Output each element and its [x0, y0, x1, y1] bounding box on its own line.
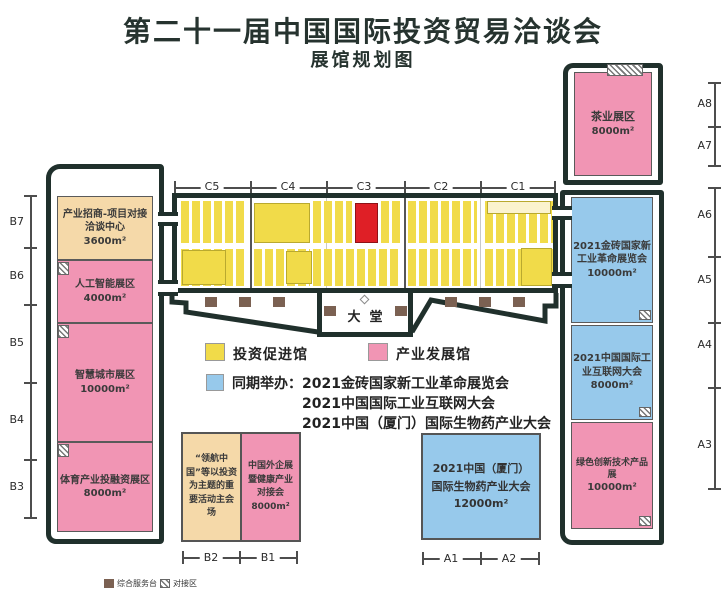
block-label: 国际生物药产业大会: [432, 478, 531, 496]
ruler-tick: [708, 322, 721, 324]
legend-label-yellow: 投资促进馆: [233, 344, 308, 364]
legend-concurrent-prefix: 同期举办：: [232, 376, 302, 392]
block-foreign-enterprise-health: 中国外企展暨健康产业对接会 8000m²: [240, 434, 299, 540]
block-biopharma-conference: 2021中国（厦门） 国际生物药产业大会 12000m²: [421, 433, 541, 540]
exhibition-map: 第二十一届中国国际投资贸易洽谈会 展馆规划图 产业招商-项目对接洽谈中心 360…: [0, 0, 726, 595]
ruler-label-c5: C5: [201, 180, 224, 193]
ruler-label-b7: B7: [2, 215, 24, 228]
hall-divider: [480, 198, 481, 288]
corridor-connector: [158, 212, 178, 226]
corridor-connector: [158, 280, 178, 296]
ruler-tick: [708, 165, 721, 167]
ruler-label-a7: A7: [690, 139, 712, 152]
ruler-label-c4: C4: [277, 180, 300, 193]
corridor-connector: [552, 272, 572, 288]
ruler-line-a-side: [714, 188, 716, 490]
block-area: 8000m²: [84, 487, 127, 501]
booths-band: [381, 201, 401, 243]
hall-divider: [404, 198, 406, 288]
ruler-label-a5: A5: [690, 273, 712, 286]
service-desk-marker: [239, 297, 251, 307]
block-investment-matchmaking-center: 产业招商-项目对接洽谈中心 3600m²: [57, 196, 153, 260]
service-desk-legend-icon: [104, 579, 114, 588]
legend-swatch-pink: [368, 343, 388, 361]
highlighted-booth-red: [355, 203, 378, 243]
matching-area-icon: [58, 444, 69, 457]
ruler-label-b3: B3: [2, 480, 24, 493]
ruler-line-b-side: [30, 196, 32, 518]
service-desk-marker: [513, 297, 525, 307]
ruler-label-b1: B1: [257, 551, 280, 564]
legend-concurrent-line3: 2021中国（厦门）国际生物药产业大会: [302, 414, 551, 434]
ruler-label-b6: B6: [2, 269, 24, 282]
block-label: 2021中国（厦门）: [433, 460, 530, 478]
south-b-building: “领航中国”等以投资为主题的重要活动主会场 中国外企展暨健康产业对接会 8000…: [181, 432, 301, 542]
booths-band: [408, 249, 477, 286]
service-desk-marker: [479, 297, 491, 307]
booth-block-large: [182, 250, 226, 285]
ruler-label-c3: C3: [353, 180, 376, 193]
booths-band: [408, 201, 477, 243]
block-label: 人工智能展区: [75, 278, 135, 292]
ruler-label-b4: B4: [2, 413, 24, 426]
ruler-tick: [708, 256, 721, 258]
block-smart-city-exhibition: 智慧城市展区 10000m²: [57, 323, 153, 442]
block-ai-exhibition: 人工智能展区 4000m²: [57, 260, 153, 323]
block-label: 绿色创新技术产品展: [572, 457, 652, 481]
block-brics-new-industrial-revolution: 2021金砖国家新工业革命展览会 10000m²: [571, 197, 653, 323]
legend-swatch-blue: [206, 374, 224, 391]
legend-label-pink: 产业发展馆: [396, 344, 471, 364]
block-label: 体育产业投融资展区: [60, 474, 150, 488]
booths-band: [313, 201, 352, 243]
block-area: 3600m²: [84, 235, 127, 249]
ruler-tick: [296, 551, 298, 564]
block-tea-exhibition: 茶业展区 8000m²: [574, 72, 652, 176]
ruler-label-b2: B2: [200, 551, 223, 564]
ruler-tick: [24, 247, 37, 249]
block-label: 茶业展区: [591, 110, 635, 125]
ruler-tick: [708, 82, 721, 84]
matching-area-legend-label: 对接区: [173, 578, 197, 589]
ruler-line-a-top: [714, 83, 716, 167]
ruler-label-c1: C1: [507, 180, 530, 193]
booth-block-large: [521, 248, 552, 286]
service-desk-marker: [205, 297, 217, 307]
ruler-label-a6: A6: [690, 208, 712, 221]
legend-swatch-yellow: [205, 343, 225, 361]
matching-area-legend-icon: [160, 579, 170, 588]
ruler-label-c2: C2: [430, 180, 453, 193]
corridor-connector: [552, 206, 572, 220]
block-area: 8000m²: [592, 125, 635, 139]
booths-band: [181, 201, 247, 243]
ruler-tick: [182, 551, 184, 564]
service-desk-legend-label: 综合服务台: [117, 578, 157, 589]
ruler-tick: [24, 195, 37, 197]
block-area: 4000m²: [84, 292, 127, 306]
ruler-tick: [422, 552, 424, 565]
ruler-label-a1: A1: [440, 552, 463, 565]
ruler-label-a3: A3: [690, 438, 712, 451]
ruler-tick: [708, 187, 721, 189]
legend-concurrent-events: 同期举办：2021金砖国家新工业革命展览会 2021中国国际工业互联网大会 20…: [232, 374, 551, 434]
block-label: 2021中国国际工业互联网大会: [572, 352, 652, 379]
ruler-label-a4: A4: [690, 338, 712, 351]
block-label: 2021金砖国家新工业革命展览会: [572, 240, 652, 267]
hall-divider: [250, 198, 252, 288]
block-area: 8000m²: [591, 379, 634, 393]
block-area: 10000m²: [587, 481, 637, 495]
block-main-venue: “领航中国”等以投资为主题的重要活动主会场: [183, 434, 240, 540]
matching-area-icon: [58, 325, 69, 338]
service-desk-marker: [324, 306, 336, 316]
legend-concurrent-line2: 2021中国国际工业互联网大会: [302, 394, 551, 414]
block-area: 12000m²: [454, 495, 509, 513]
service-desk-marker: [395, 306, 407, 316]
matching-area-icon: [639, 516, 651, 526]
booths-band: [313, 249, 401, 286]
ruler-tick: [708, 126, 721, 128]
ruler-tick: [24, 517, 37, 519]
ruler-tick: [239, 551, 241, 564]
block-sports-investment-exhibition: 体育产业投融资展区 8000m²: [57, 442, 153, 532]
ruler-tick: [708, 387, 721, 389]
ruler-tick: [24, 304, 37, 306]
ruler-tick: [538, 552, 540, 565]
block-area: 10000m²: [587, 267, 637, 281]
matching-area-icon: [639, 310, 651, 320]
service-desk-marker: [445, 297, 457, 307]
legend-concurrent-line1: 同期举办：2021金砖国家新工业革命展览会: [232, 374, 551, 394]
block-label: 智慧城市展区: [75, 369, 135, 383]
block-area: 8000m²: [251, 501, 289, 515]
ruler-tick: [480, 552, 482, 565]
block-area: 10000m²: [80, 383, 130, 397]
matching-area-icon: [607, 64, 643, 76]
ruler-tick: [24, 459, 37, 461]
block-label: 产业招商-项目对接洽谈中心: [58, 208, 152, 235]
matching-area-icon: [639, 407, 651, 417]
booth-block-wide: [487, 201, 551, 214]
booth-block-large: [254, 203, 310, 243]
service-desk-marker: [273, 297, 285, 307]
legend-concurrent-event: 2021金砖国家新工业革命展览会: [302, 376, 509, 392]
page-title: 第二十一届中国国际投资贸易洽谈会: [0, 10, 726, 50]
ruler-tick: [708, 488, 721, 490]
matching-area-icon: [58, 262, 69, 275]
block-label: 中国外企展暨健康产业对接会: [245, 460, 296, 501]
lobby-label: 大堂: [338, 306, 391, 325]
ruler-tick: [24, 382, 37, 384]
ruler-label-a8: A8: [690, 97, 712, 110]
ruler-label-b5: B5: [2, 336, 24, 349]
block-industrial-internet-conference: 2021中国国际工业互联网大会 8000m²: [571, 325, 653, 420]
ruler-label-a2: A2: [498, 552, 521, 565]
block-green-innovation-products: 绿色创新技术产品展 10000m²: [571, 422, 653, 529]
booth-block-large: [286, 251, 312, 284]
